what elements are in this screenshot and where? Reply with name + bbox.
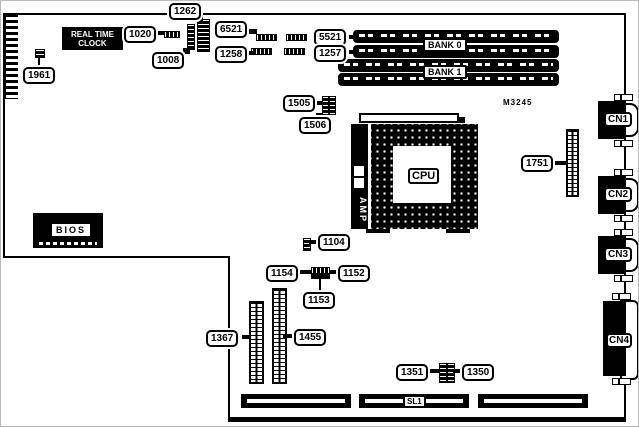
jumper-block-1152-pins (312, 268, 329, 273)
cn3-tab-bottom (621, 275, 633, 282)
callout-1152: 1152 (338, 265, 370, 282)
bios-label: BIOS (51, 223, 91, 237)
cn4-tab-top (619, 293, 631, 300)
pin-header-1367 (249, 301, 264, 384)
cn2-tab-bottom-small (614, 215, 621, 222)
bios-chip-notch (39, 242, 97, 245)
cn4-tab-bottom-small (612, 378, 619, 385)
jumper-1351-component (439, 363, 447, 383)
cn2-tab-top (621, 169, 633, 176)
callout-1505: 1505 (283, 95, 315, 112)
callout-1506: 1506 (299, 117, 331, 134)
expansion-slot-right-groove (484, 399, 582, 403)
amp-bracket-slot-upper (354, 166, 364, 176)
cn4-tab-top-small (612, 293, 619, 300)
cn1-tab-bottom (621, 140, 633, 147)
bank1-label: BANK 1 (423, 65, 467, 79)
sl1-label: SL1 (403, 395, 426, 408)
board-notch-horizontal (3, 256, 230, 258)
cn2-label: CN2 (604, 187, 632, 202)
callout-1258: 1258 (215, 46, 247, 63)
wire-6521-a (256, 34, 277, 41)
jumper-1008-component (187, 24, 195, 50)
leader-1020 (158, 31, 165, 35)
callout-1153: 1153 (303, 292, 335, 309)
jumper-1961-component (35, 49, 45, 58)
wire-6521-b (286, 34, 307, 41)
cn3-tab-top-small (614, 229, 621, 236)
cpu-socket-foot-left (366, 229, 390, 233)
cn2-tab-top-small (614, 169, 621, 176)
callout-1020: 1020 (124, 26, 156, 43)
callout-1262: 1262 (169, 3, 201, 20)
expansion-slot-left-groove (247, 399, 345, 403)
leader-1751 (552, 161, 566, 165)
board-edge-top (3, 13, 624, 15)
jumper-1506-component (329, 96, 336, 115)
cpu-retention-clip (457, 117, 465, 123)
callout-1350: 1350 (462, 364, 494, 381)
callout-1154: 1154 (266, 265, 298, 282)
jumper-1262-component (197, 19, 210, 52)
cn4-tab-bottom (619, 378, 631, 385)
model-number: M3245 (503, 98, 532, 107)
leader-1153 (319, 279, 321, 293)
real-time-clock-label-line2: CLOCK (78, 39, 106, 48)
cpu-socket-foot-right (446, 229, 470, 233)
jumper-1505-component (322, 96, 329, 115)
leader-1008 (183, 48, 190, 54)
amp-bracket-slot-lower (354, 178, 364, 188)
callout-1257: 1257 (314, 45, 346, 62)
leader-1257 (349, 50, 355, 54)
header-1751 (566, 129, 579, 197)
cn3-tab-top (621, 229, 633, 236)
callout-1351: 1351 (396, 364, 428, 381)
board-edge-bottom (228, 417, 626, 422)
callout-6521: 6521 (215, 21, 247, 38)
bank0-label: BANK 0 (423, 38, 467, 52)
jumper-1020-component (164, 31, 180, 38)
real-time-clock-chip: REAL TIME CLOCK (62, 27, 123, 50)
cn1-tab-bottom-small (614, 140, 621, 147)
cn2-tab-bottom (621, 215, 633, 222)
cpu-label: CPU (408, 168, 439, 184)
wire-1258-b (284, 48, 305, 55)
cpu-retention-bar (359, 113, 459, 123)
callout-5521: 5521 (314, 29, 346, 46)
leader-6521 (248, 29, 257, 34)
jumper-1350-component (447, 363, 455, 383)
callout-1961: 1961 (23, 67, 55, 84)
cn4-label: CN4 (606, 333, 632, 348)
callout-1008: 1008 (152, 52, 184, 69)
leader-1505 (316, 101, 323, 105)
cn1-tab-top-small (614, 94, 621, 101)
leader-5521 (349, 35, 355, 39)
callout-1104: 1104 (318, 234, 350, 251)
real-time-clock-label-line1: REAL TIME (71, 30, 114, 39)
cn1-label: CN1 (604, 112, 632, 127)
callout-1367: 1367 (206, 330, 238, 347)
cn1-tab-top (621, 94, 633, 101)
card-edge-spine (3, 14, 6, 99)
leader-1367 (242, 335, 250, 339)
leader-1154 (300, 270, 311, 274)
callout-1455: 1455 (294, 329, 326, 346)
amp-label: AMP (352, 191, 368, 228)
callout-1751: 1751 (521, 155, 553, 172)
leader-1351 (430, 369, 440, 373)
motherboard-diagram: REAL TIME CLOCK BIOS BANK 0 BANK 1 M3245… (0, 0, 639, 427)
cn3-label: CN3 (604, 247, 632, 262)
leader-1258 (248, 51, 256, 55)
cn3-tab-bottom-small (614, 275, 621, 282)
